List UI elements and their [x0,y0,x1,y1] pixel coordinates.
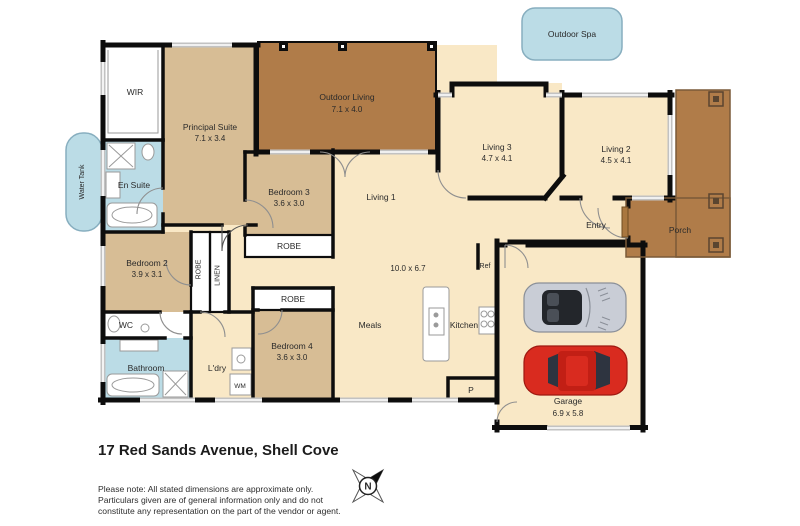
living1-dims: 10.0 x 6.7 [390,264,426,273]
bedroom3-dims: 3.6 x 3.0 [274,199,305,208]
bathroom-vanity [120,340,158,351]
wc-label: WC [119,320,133,330]
ensuite-toilet [142,144,154,160]
disclaimer-line-1: Please note: All stated dimensions are a… [98,484,341,495]
ref-label: Ref [480,263,491,270]
principal-label: Principal Suite [183,122,238,132]
water-tank-label: Water Tank [79,164,86,200]
living3-label: Living 3 [482,142,512,152]
garage-label: Garage [554,396,583,406]
porch-label: Porch [669,225,691,235]
wir-label: WIR [127,87,144,97]
bedroom3-label: Bedroom 3 [268,187,310,197]
garage-dims: 6.9 x 5.8 [553,409,584,418]
address-title: 17 Red Sands Avenue, Shell Cove [98,442,339,459]
living2-dims: 4.5 x 4.1 [601,156,632,165]
kitchen-sink-drain [434,323,438,327]
ensuite-label: En Suite [118,180,150,190]
bedroom2-dims: 3.9 x 3.1 [132,270,163,279]
front-door-leaf [622,207,628,237]
compass: N [353,470,383,502]
living3-dims: 4.7 x 4.1 [482,154,513,163]
living1-label: Living 1 [366,192,396,202]
laundry-label: L'dry [208,363,227,373]
bathroom-bath-tub [112,378,154,392]
linen-column-label: LINEN [215,265,222,286]
robe-column-label: ROBE [196,259,203,279]
kitchen-sink-unit [429,308,444,335]
disclaimer-line-3: constitute any representation on the par… [98,506,341,517]
outdoor-spa-label: Outdoor Spa [548,29,596,39]
outdoor-living-dims: 7.1 x 4.0 [332,105,363,114]
robe3-label: ROBE [277,241,301,251]
silver-car [524,283,626,332]
ensuite-bath-tub [112,207,152,223]
pantry-label: P [468,385,474,395]
bedroom4-dims: 3.6 x 3.0 [277,353,308,362]
living2-label: Living 2 [601,144,631,154]
red-car [524,346,627,395]
floorplan-page: Outdoor Spa Water Tank [0,0,800,526]
disclaimer-line-2: Particulars given are of general informa… [98,495,341,506]
compass-north-label: N [364,482,371,493]
porch-side-area [676,90,730,202]
principal-dims: 7.1 x 3.4 [195,134,226,143]
kitchen-cooktop [479,307,496,334]
bedroom2-label: Bedroom 2 [126,258,168,268]
laundry-tub-sink [237,355,245,363]
floor-living3 [438,83,562,243]
outdoor-living-label: Outdoor Living [319,92,375,102]
wm-label: WM [234,383,246,390]
floor-fills [103,42,730,428]
meals-label: Meals [359,320,382,330]
wc-basin [141,324,149,332]
entry-label: Entry [586,220,607,230]
robe4-label: ROBE [281,294,305,304]
disclaimer-note: Please note: All stated dimensions are a… [98,484,341,517]
bedroom4-label: Bedroom 4 [271,341,313,351]
kitchen-sink-tap [434,313,438,317]
red-car-windshield [594,351,610,390]
kitchen-label: Kitchen [450,320,479,330]
bathroom-label: Bathroom [128,363,165,373]
